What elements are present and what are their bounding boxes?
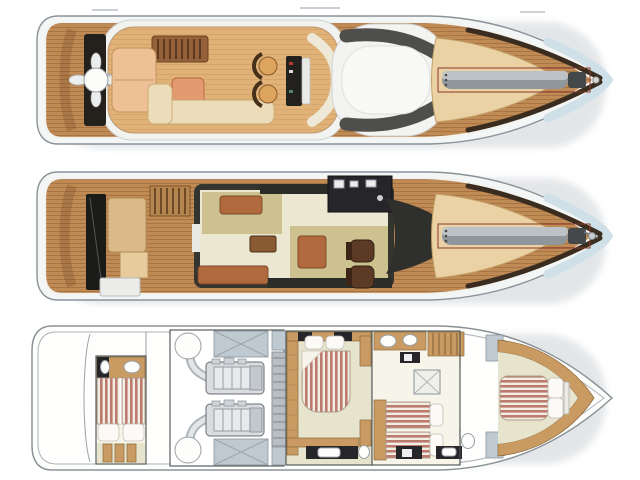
bath-sink: [380, 335, 396, 347]
twin-pillow-1: [430, 404, 443, 426]
anchor-fitting: [593, 77, 599, 83]
fwd-bath-toilet: [462, 434, 475, 449]
master-pillow-2: [326, 336, 344, 349]
salon-sofa-starboard: [198, 266, 268, 284]
helm-chair-2-back: [346, 268, 352, 286]
yacht-layout-diagram: [0, 0, 640, 480]
flybridge-deck-plan: [37, 8, 610, 148]
twin-cabin-cabinet: [374, 400, 386, 460]
crew-toilet: [101, 361, 110, 374]
helm-chair-2: [350, 266, 374, 288]
aft-bench-corner: [120, 252, 148, 278]
main-deck-plan: [37, 172, 610, 304]
locker-bottom: [272, 447, 286, 465]
master-dresser: [360, 420, 371, 446]
flybridge-stairs: [150, 186, 190, 216]
helm-chair-1-back: [346, 242, 352, 260]
helm-console: [286, 56, 310, 106]
bath-cabinet-sink: [404, 354, 412, 361]
muffler-2: [175, 437, 201, 463]
antenna-marks: [92, 8, 545, 12]
salon-sofa-port: [220, 196, 262, 214]
twin-bed-1: [386, 402, 430, 428]
coffee-table: [250, 236, 276, 252]
master-cabin: [286, 331, 372, 465]
engine-port: [206, 358, 264, 394]
salon-chaise: [298, 236, 326, 268]
crew-sink: [124, 361, 140, 373]
shower: [414, 370, 440, 394]
galley: [328, 176, 392, 212]
master-wardrobe: [360, 336, 371, 366]
crew-bunk-1: [97, 378, 120, 424]
bath-toilet: [403, 335, 417, 346]
fwd-bath-appliance: [402, 449, 412, 457]
vip-pillow-2: [548, 398, 563, 418]
crew-cabin: [96, 356, 146, 464]
engine-starboard: [206, 400, 264, 436]
transom-box: [100, 278, 140, 296]
master-toilet: [359, 446, 370, 459]
grill-vents: [152, 36, 208, 62]
fuel-tank-starboard: [214, 439, 268, 465]
crew-duvet-1: [98, 424, 119, 441]
locker-top: [272, 331, 286, 350]
aft-door-opening: [192, 224, 200, 252]
vip-pillow-1: [548, 378, 563, 398]
crew-duvet-2: [123, 424, 144, 441]
lower-deck-plan: [32, 326, 612, 470]
l-sofa-corner: [148, 84, 172, 124]
master-pillow-1: [305, 336, 323, 349]
vip-headboard: [564, 382, 569, 414]
yacht-deck-plans-svg: [0, 0, 640, 480]
fuel-tank-port: [214, 331, 268, 357]
master-fwd-step: [287, 438, 359, 447]
engine-room: [170, 330, 286, 466]
lower-staircase: [428, 332, 464, 356]
helm-chair-1: [350, 240, 374, 262]
master-basin: [318, 448, 340, 457]
fwd-bath-sink: [442, 448, 456, 456]
engine-room-ladder: [272, 352, 286, 446]
crew-bunk-2: [122, 378, 145, 424]
satellite-dome: [84, 68, 108, 92]
muffler-1: [175, 333, 201, 359]
aft-bench: [108, 198, 146, 252]
vip-bed: [500, 376, 548, 420]
